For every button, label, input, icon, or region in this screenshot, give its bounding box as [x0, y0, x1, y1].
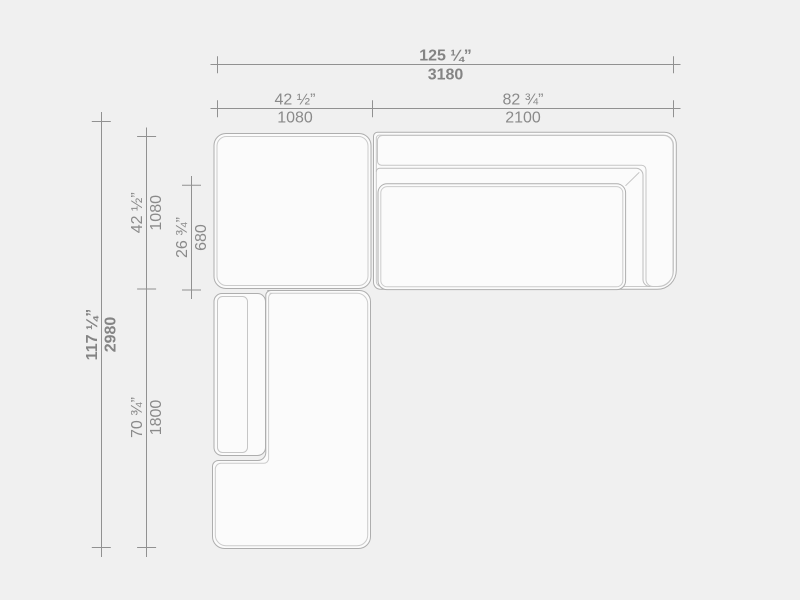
svg-text:1080: 1080 [277, 109, 313, 126]
svg-text:117 ¼”: 117 ¼” [84, 309, 101, 361]
svg-text:42 ½”: 42 ½” [275, 92, 316, 109]
svg-text:1800: 1800 [148, 400, 165, 436]
svg-text:1080: 1080 [148, 195, 165, 231]
svg-text:3180: 3180 [428, 67, 464, 84]
svg-text:125 ¼”: 125 ¼” [419, 48, 471, 65]
svg-text:2100: 2100 [505, 109, 541, 126]
svg-text:2980: 2980 [103, 317, 120, 353]
svg-text:82 ¾”: 82 ¾” [503, 92, 544, 109]
svg-text:70 ¾”: 70 ¾” [129, 397, 146, 438]
svg-text:42 ½”: 42 ½” [129, 192, 146, 233]
svg-text:26 ¾”: 26 ¾” [174, 217, 191, 258]
svg-text:680: 680 [193, 224, 210, 251]
